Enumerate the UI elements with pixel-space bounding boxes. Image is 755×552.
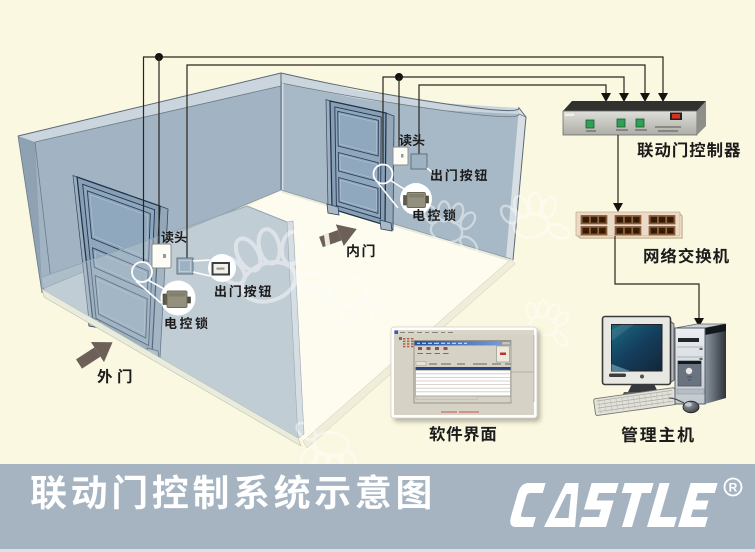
- svg-text:R: R: [729, 481, 738, 495]
